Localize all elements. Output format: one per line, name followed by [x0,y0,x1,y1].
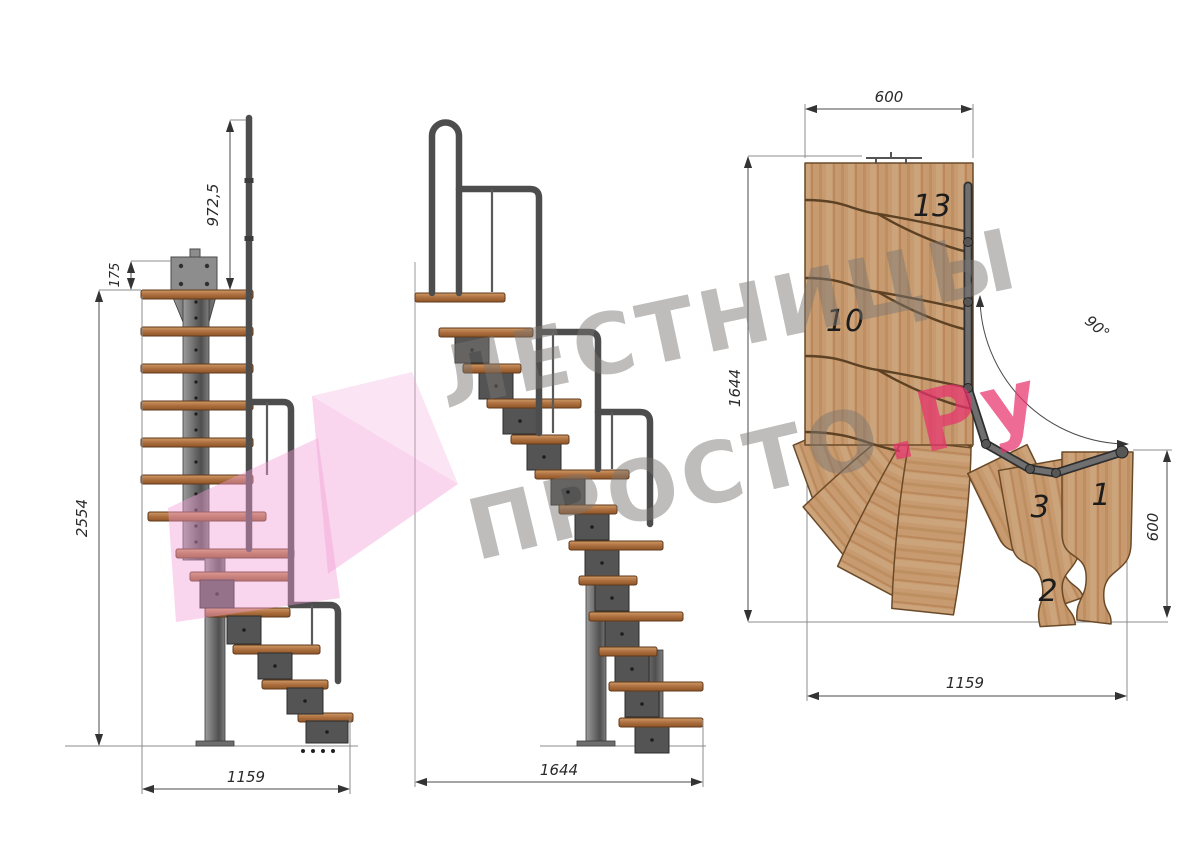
tread [511,435,569,444]
bolt-dot [194,412,197,415]
bolt-dot [325,730,329,734]
dim-label-1159-side: 1159 [227,768,265,786]
tread-number-1: 1 [1091,478,1110,513]
dim-label-90deg: 90° [1081,312,1113,343]
bolt-dot [303,699,307,703]
bolt-dot [242,628,246,632]
bolt-dot [194,428,197,431]
tread [141,290,253,299]
bolt-dot [620,632,624,636]
tread [599,647,657,656]
dim-label-600-top: 600 [875,88,904,106]
dim-label-175: 175 [108,263,123,288]
bolt-dot [194,380,197,383]
bolt-dot [650,738,654,742]
tread-number-3: 3 [1030,490,1049,525]
bolt-dot [194,348,197,351]
bolt-dot [640,702,644,706]
bolt-dot [194,460,197,463]
drawing-canvas: 2554 175 972,5 1159 [0,0,1200,849]
bolt-dot [610,596,614,600]
bolt-dot [518,419,522,423]
bolt-dot [194,396,197,399]
anchor-bolts [301,749,335,753]
tread [141,364,253,373]
plan-wall-bracket [866,152,922,164]
tread-number-13: 13 [913,189,951,224]
bolt-dot [542,455,546,459]
bolt-dot [630,667,634,671]
tread [619,718,703,727]
dim-bracket-offset: 175 [108,261,171,289]
tread-number-2: 2 [1038,574,1057,609]
tread [141,438,253,447]
tread [141,401,253,410]
dim-label-1644-front: 1644 [540,761,578,779]
bolt-dot [194,300,197,303]
dim-label-600-right: 600 [1144,513,1162,542]
wall-bracket [171,249,217,293]
dim-label-1159-plan: 1159 [946,674,984,692]
dim-label-1644-plan: 1644 [726,369,744,407]
dim-label-972-5: 972,5 [204,184,222,227]
bolt-dot [600,561,604,565]
dim-label-2554: 2554 [73,499,91,537]
tread [609,682,703,691]
tread [579,576,637,585]
staircase-technical-drawing: 2554 175 972,5 1159 [0,0,1200,849]
tread [141,327,253,336]
bolt-dot [273,664,277,668]
tread [589,612,683,621]
dim-total-height: 2554 [73,290,141,745]
bolt-dot [194,316,197,319]
